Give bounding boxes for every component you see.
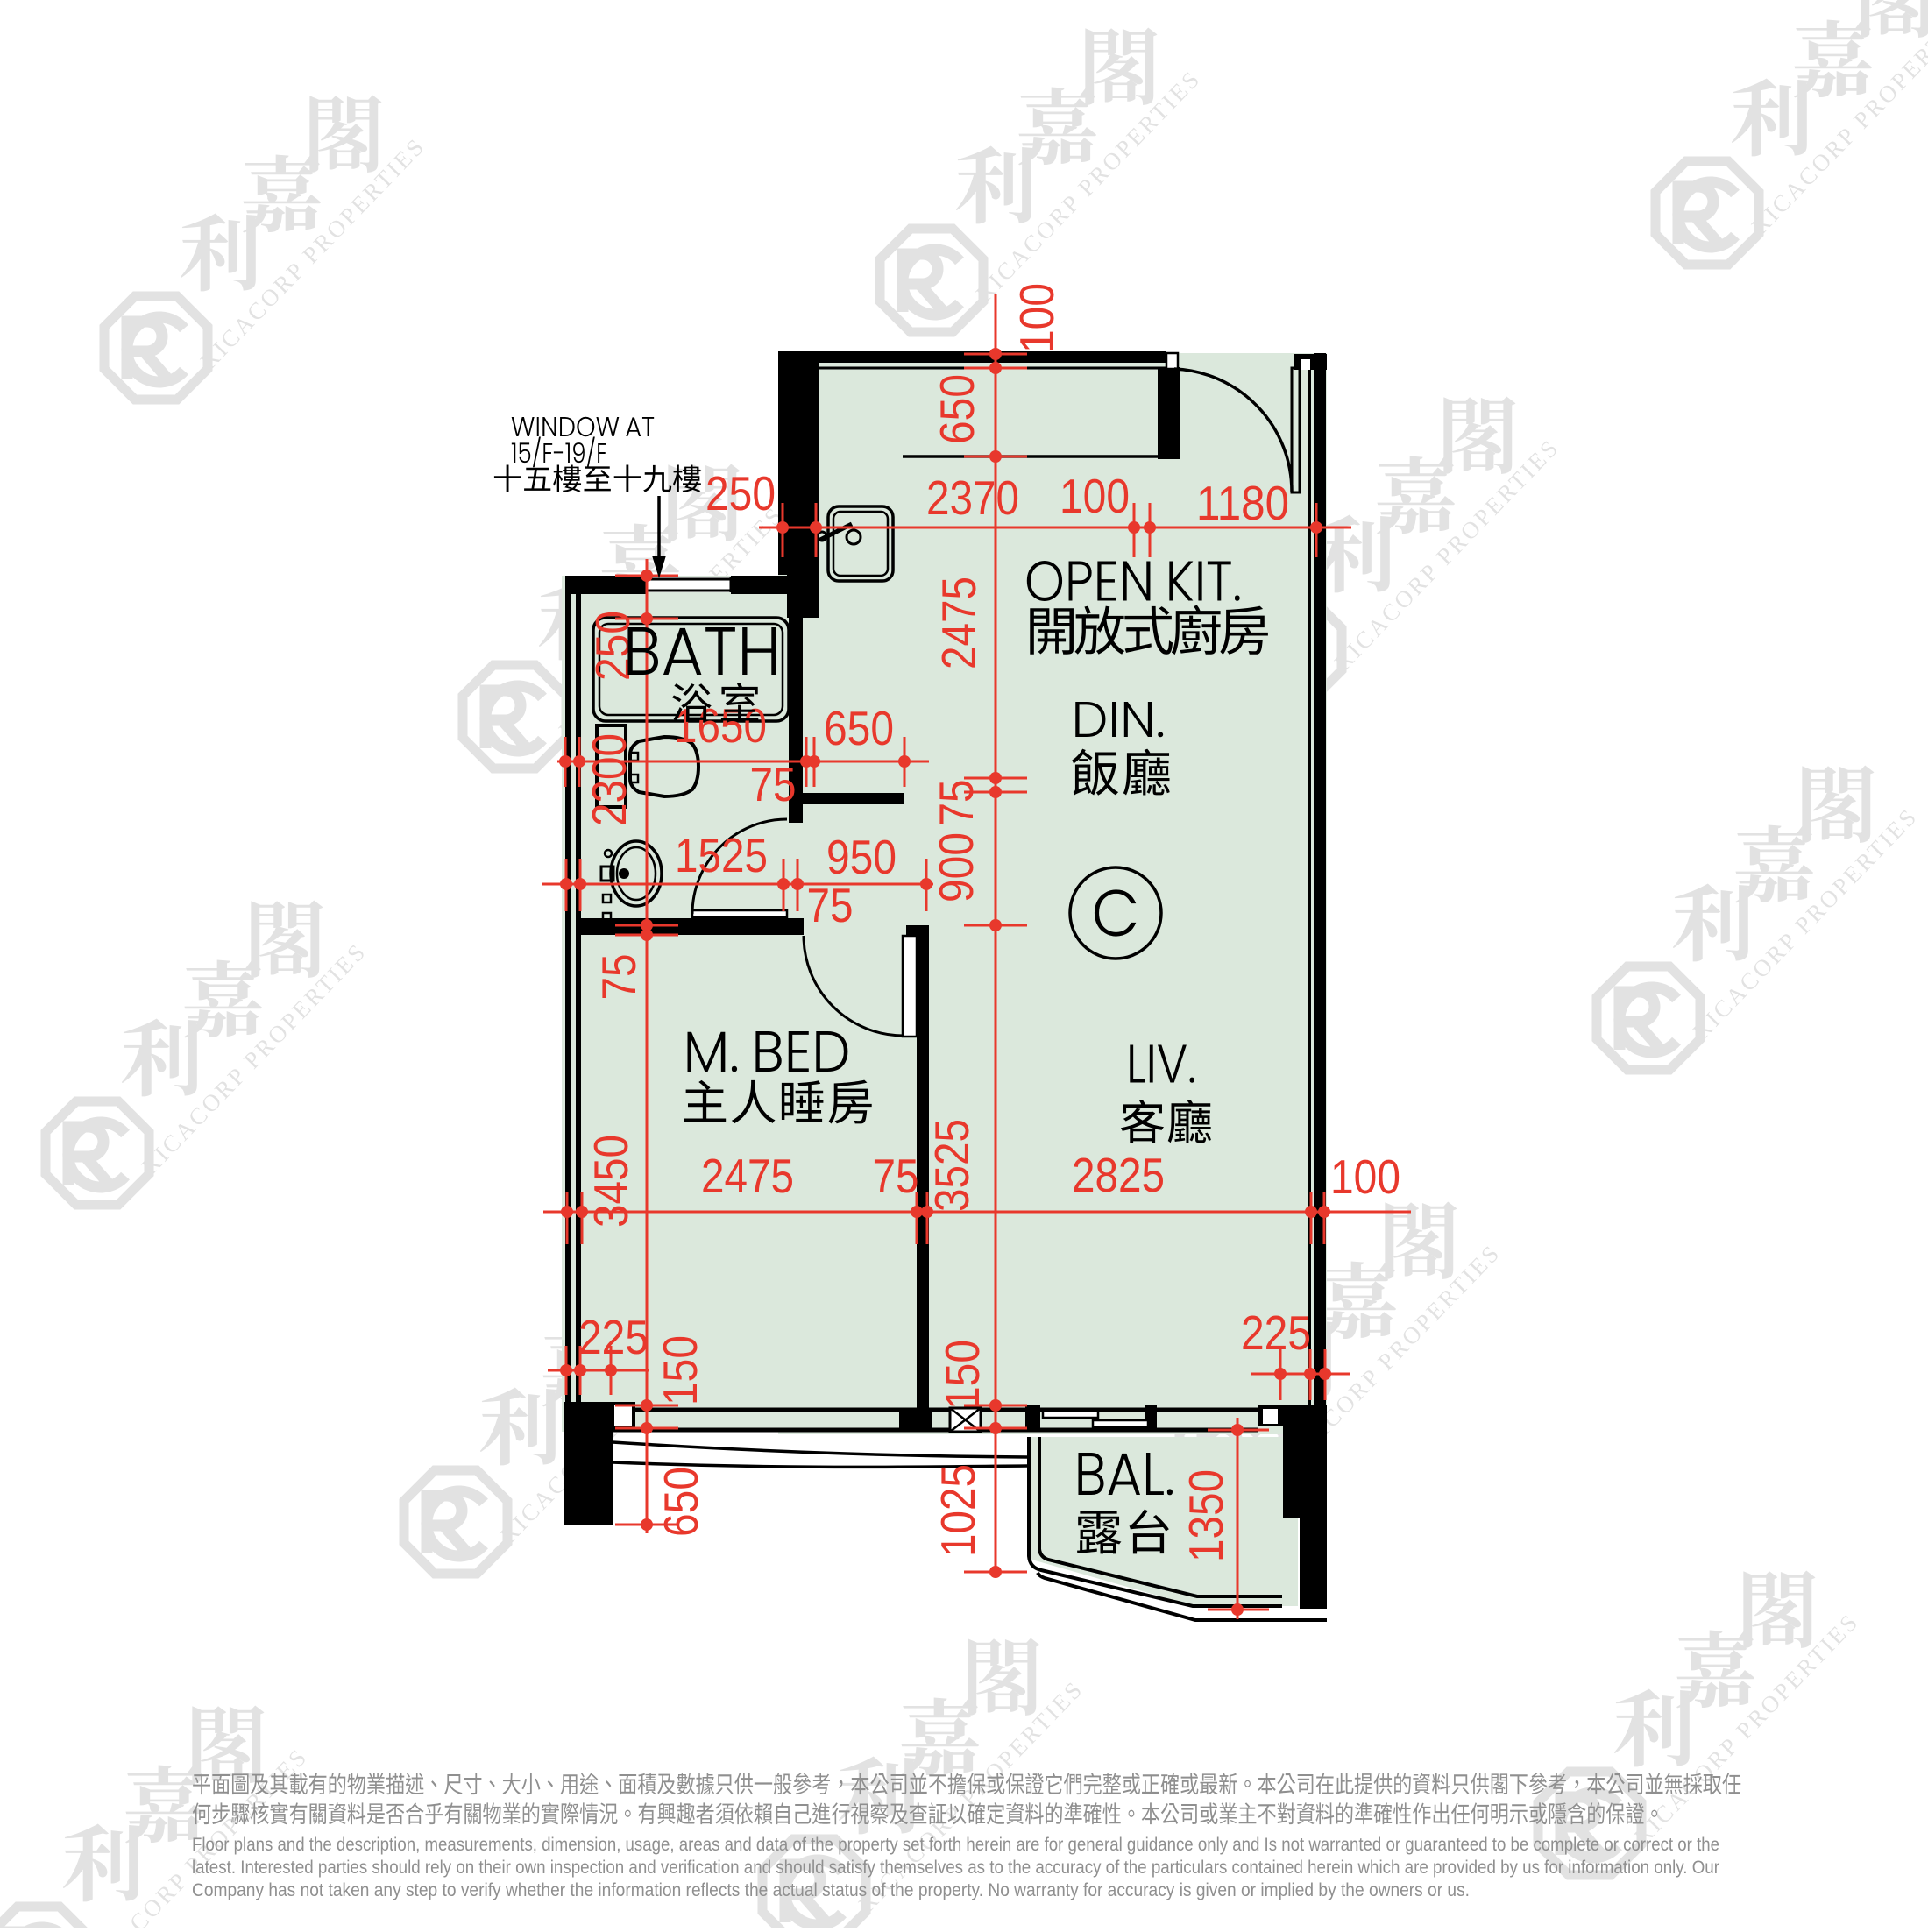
svg-text:3450: 3450 (584, 1135, 638, 1228)
svg-text:1180: 1180 (1196, 476, 1289, 530)
svg-text:Floor plans and the descriptio: Floor plans and the description, measure… (192, 1835, 1719, 1855)
svg-text:100: 100 (1010, 283, 1064, 353)
svg-text:150: 150 (653, 1335, 707, 1405)
svg-text:2475: 2475 (701, 1149, 794, 1203)
svg-text:100: 100 (1060, 469, 1130, 523)
svg-text:2370: 2370 (926, 471, 1019, 525)
svg-text:100: 100 (1330, 1150, 1400, 1204)
svg-text:75: 75 (592, 954, 646, 1001)
svg-text:250: 250 (705, 466, 776, 520)
svg-text:3525: 3525 (925, 1119, 979, 1212)
svg-text:650: 650 (824, 701, 894, 755)
svg-text:950: 950 (826, 830, 897, 884)
svg-text:75: 75 (929, 780, 983, 826)
svg-text:75: 75 (873, 1149, 919, 1203)
svg-text:2825: 2825 (1072, 1148, 1165, 1202)
svg-text:225: 225 (578, 1310, 649, 1364)
svg-text:Company has not taken any step: Company has not taken any step to verify… (192, 1880, 1470, 1900)
svg-text:150: 150 (935, 1340, 989, 1410)
svg-text:2475: 2475 (932, 577, 986, 669)
svg-text:75: 75 (750, 757, 797, 811)
svg-text:1525: 1525 (675, 828, 768, 882)
svg-text:1025: 1025 (931, 1464, 985, 1557)
svg-text:1350: 1350 (1179, 1469, 1233, 1562)
svg-text:latest. Interested parties sho: latest. Interested parties should rely o… (192, 1858, 1719, 1878)
svg-text:75: 75 (807, 878, 854, 932)
svg-text:2300: 2300 (582, 733, 636, 826)
svg-text:225: 225 (1241, 1306, 1311, 1360)
svg-text:650: 650 (654, 1467, 708, 1537)
svg-text:650: 650 (930, 374, 984, 444)
svg-text:900: 900 (929, 832, 983, 902)
